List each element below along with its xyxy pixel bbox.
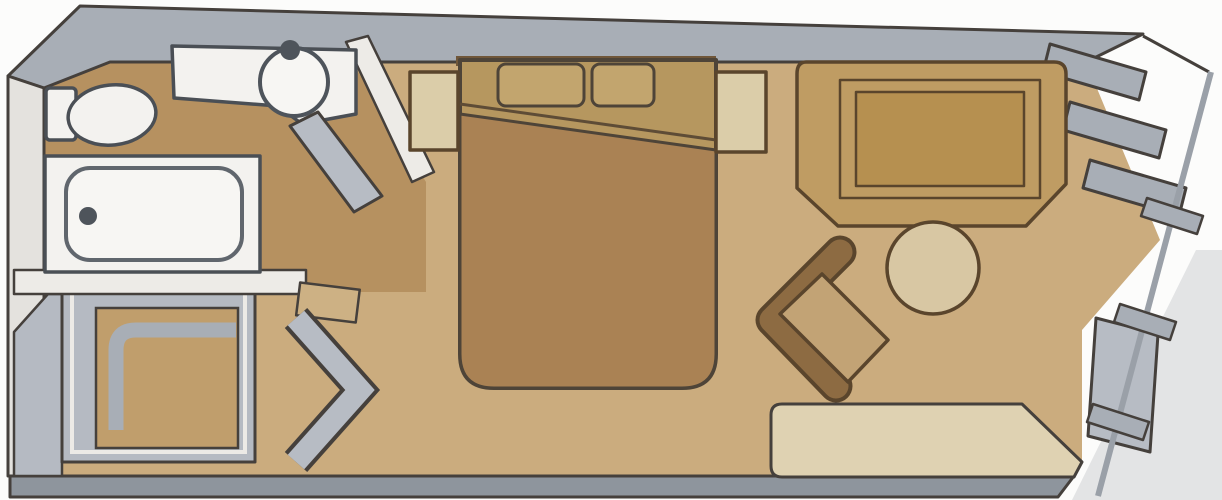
sink-faucet	[280, 40, 300, 60]
sofa	[771, 404, 1082, 477]
pillow-left	[498, 64, 584, 106]
bathtub-faucet	[79, 207, 97, 225]
nightstand-right	[716, 72, 766, 152]
pillow-right	[592, 64, 654, 106]
floor-plan	[0, 0, 1222, 500]
bottom-wall	[10, 476, 1074, 497]
round-table	[887, 222, 979, 314]
desk-inner-panel	[856, 92, 1024, 186]
nightstand-left	[410, 72, 458, 150]
bed-duvet	[460, 114, 716, 388]
